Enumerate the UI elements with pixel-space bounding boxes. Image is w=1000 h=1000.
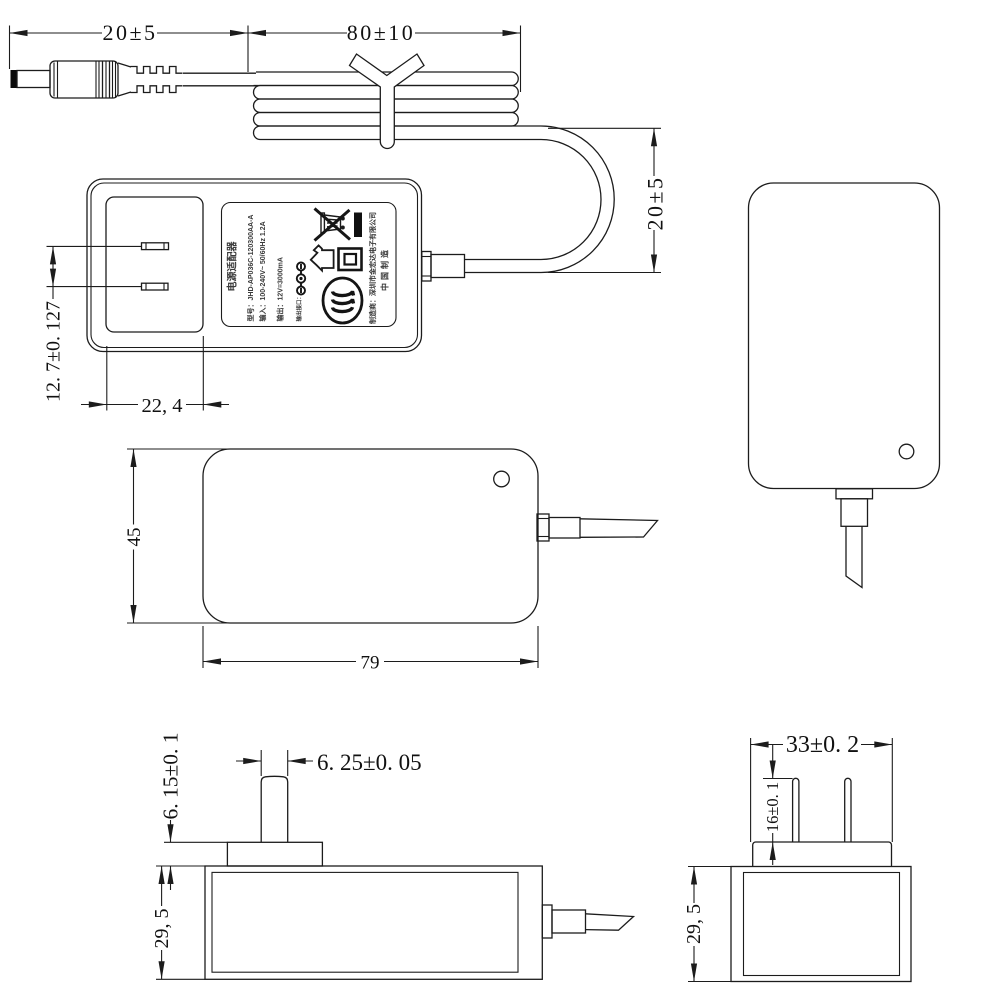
svg-text:输入：100-240V~ 50/60Hz 1.2A: 输入：100-240V~ 50/60Hz 1.2A bbox=[258, 221, 267, 321]
svg-text:80±10: 80±10 bbox=[347, 20, 416, 45]
svg-text:45: 45 bbox=[124, 528, 145, 547]
svg-text:79: 79 bbox=[361, 653, 380, 674]
svg-text:6. 25±0. 05: 6. 25±0. 05 bbox=[317, 750, 422, 775]
svg-text:输出接口：: 输出接口： bbox=[295, 294, 303, 322]
svg-text:电源适配器: 电源适配器 bbox=[226, 241, 239, 292]
svg-text:29, 5: 29, 5 bbox=[683, 904, 705, 944]
svg-text:制造商：深圳市金宏达电子有限公司: 制造商：深圳市金宏达电子有限公司 bbox=[368, 212, 377, 324]
svg-text:16±0. 1: 16±0. 1 bbox=[763, 782, 782, 832]
svg-text:20±5: 20±5 bbox=[102, 20, 157, 45]
svg-text:6. 15±0. 1: 6. 15±0. 1 bbox=[159, 732, 183, 819]
svg-text:22, 4: 22, 4 bbox=[142, 395, 183, 417]
svg-text:33±0. 2: 33±0. 2 bbox=[786, 732, 859, 758]
svg-text:型号：JHD-AP036C-120300AA-A: 型号：JHD-AP036C-120300AA-A bbox=[246, 215, 255, 322]
svg-text:输出：12V=3000mA: 输出：12V=3000mA bbox=[276, 257, 285, 321]
svg-text:中国制造: 中国制造 bbox=[380, 247, 390, 291]
svg-text:29, 5: 29, 5 bbox=[151, 909, 173, 949]
svg-text:12. 7±0. 127: 12. 7±0. 127 bbox=[43, 301, 65, 402]
svg-text:20±5: 20±5 bbox=[643, 175, 668, 230]
